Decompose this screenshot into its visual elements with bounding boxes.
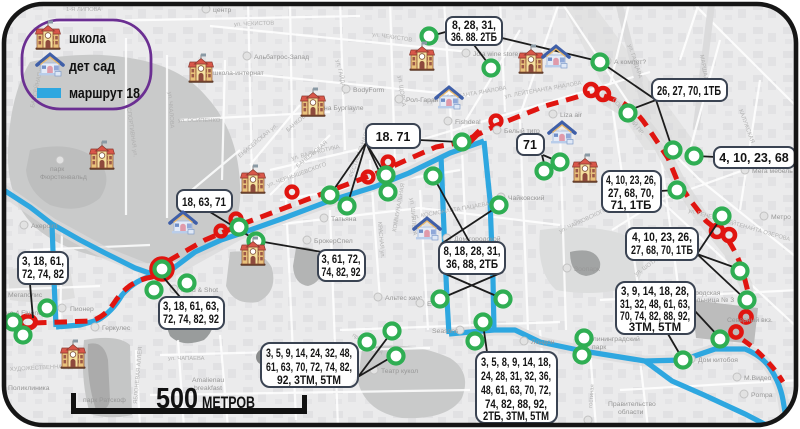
- svg-text:500: 500: [156, 383, 198, 415]
- svg-text:ул. ОСИПЕНКО: ул. ОСИПЕНКО: [178, 118, 221, 124]
- svg-text:Метро: Метро: [771, 214, 791, 221]
- svg-text:48, 61, 63, 70, 72,: 48, 61, 63, 70, 72,: [481, 385, 551, 397]
- svg-text:72, 74, 82: 72, 74, 82: [22, 269, 64, 281]
- svg-text:Правительство: Правительство: [608, 401, 656, 408]
- svg-text:31, 32, 48, 61, 63,: 31, 32, 48, 61, 63,: [620, 299, 690, 311]
- svg-text:М.Видео: М.Видео: [744, 375, 772, 382]
- svg-text:4, 10, 23, 26,: 4, 10, 23, 26,: [632, 232, 692, 244]
- svg-text:24, 28, 31, 32, 36,: 24, 28, 31, 32, 36,: [481, 371, 551, 383]
- svg-text:Мегаполис: Мегаполис: [8, 292, 43, 299]
- svg-text:Татьяна: Татьяна: [331, 216, 357, 223]
- svg-text:breakfast: breakfast: [194, 385, 222, 392]
- svg-text:дет сад: дет сад: [69, 58, 115, 75]
- svg-text:Фюрстенвальд: Фюрстенвальд: [40, 174, 87, 181]
- svg-text:3, 18, 61,: 3, 18, 61,: [22, 256, 64, 268]
- svg-text:27, 68, 70, 1ТБ: 27, 68, 70, 1ТБ: [631, 245, 693, 257]
- svg-text:ул. ЧАПАЕВА: ул. ЧАПАЕВА: [168, 356, 205, 362]
- svg-text:БрокерСпел: БрокерСпел: [314, 238, 353, 245]
- svg-text:2ТБ, 3ТМ, 5ТМ: 2ТБ, 3ТМ, 5ТМ: [483, 411, 549, 423]
- svg-text:Северный вкз.: Северный вкз.: [727, 316, 773, 324]
- svg-text:92, 3ТМ, 5ТМ: 92, 3ТМ, 5ТМ: [277, 375, 341, 387]
- svg-text:3, 18, 61, 63,: 3, 18, 61, 63,: [163, 301, 219, 313]
- svg-text:74, 82, 88, 92,: 74, 82, 88, 92,: [485, 399, 547, 411]
- svg-text:на Бургіауле: на Бургіауле: [324, 104, 364, 112]
- svg-text:маршрут 18: маршрут 18: [69, 85, 140, 102]
- svg-text:27, 68, 70,: 27, 68, 70,: [608, 188, 654, 200]
- svg-text:4, 10, 23, 26,: 4, 10, 23, 26,: [606, 175, 656, 187]
- svg-text:72, 74, 82, 92: 72, 74, 82, 92: [163, 314, 219, 326]
- svg-text:BodyForm: BodyForm: [353, 87, 385, 94]
- svg-text:Геркулес: Геркулес: [102, 325, 131, 332]
- svg-text:3, 5, 8, 9, 14, 18,: 3, 5, 8, 9, 14, 18,: [481, 357, 551, 369]
- svg-text:Лондон: Лондон: [531, 339, 555, 346]
- svg-text:парк: парк: [592, 344, 606, 351]
- svg-text:74, 82, 92: 74, 82, 92: [322, 267, 361, 279]
- svg-text:71: 71: [523, 138, 537, 152]
- svg-text:Альбатрос-Запад: Альбатрос-Запад: [254, 53, 309, 61]
- svg-text:парк: парк: [50, 166, 64, 173]
- svg-text:Пионер: Пионер: [70, 306, 94, 313]
- svg-text:61, 63, 70, 72, 74, 82,: 61, 63, 70, 72, 74, 82,: [266, 362, 352, 374]
- svg-text:1-Я ЛИПОВА: 1-Я ЛИПОВА: [66, 7, 101, 13]
- svg-text:Дом китобоя: Дом китобоя: [698, 356, 738, 364]
- svg-text:18, 63, 71: 18, 63, 71: [182, 197, 227, 209]
- svg-text:Театр кукол: Театр кукол: [381, 368, 418, 375]
- svg-text:Liza air: Liza air: [560, 112, 583, 119]
- svg-text:71, 1ТБ: 71, 1ТБ: [611, 200, 652, 212]
- svg-text:8, 28, 31,: 8, 28, 31,: [452, 20, 496, 32]
- svg-text:26, 27, 70, 1ТБ: 26, 27, 70, 1ТБ: [657, 84, 721, 98]
- svg-text:36. 88. 2ТБ: 36. 88. 2ТБ: [451, 32, 497, 44]
- svg-text:школа: школа: [69, 30, 107, 47]
- svg-text:Seasons: Seasons: [432, 328, 459, 335]
- svg-text:36, 88, 2ТБ: 36, 88, 2ТБ: [446, 259, 498, 271]
- svg-text:МЕТРОВ: МЕТРОВ: [202, 393, 255, 412]
- svg-text:Fishdeal: Fishdeal: [455, 119, 481, 126]
- svg-text:Axepoint: Axepoint: [31, 223, 58, 230]
- svg-text:3ТМ, 5ТМ: 3ТМ, 5ТМ: [629, 322, 681, 334]
- svg-text:А компот?: А компот?: [614, 59, 646, 66]
- svg-text:18. 71: 18. 71: [376, 130, 411, 144]
- svg-text:Поликлиника: Поликлиника: [8, 385, 50, 392]
- svg-text:Зоопарк: Зоопарк: [574, 266, 600, 273]
- svg-text:3, 61, 72,: 3, 61, 72,: [322, 254, 361, 266]
- svg-text:3, 5, 9, 14, 24, 32, 48,: 3, 5, 9, 14, 24, 32, 48,: [266, 348, 352, 360]
- svg-text:центр: центр: [213, 7, 231, 14]
- svg-text:Чайковский: Чайковский: [508, 194, 545, 202]
- svg-text:8, 18, 28, 31,: 8, 18, 28, 31,: [444, 246, 501, 258]
- svg-text:школа-интернат: школа-интернат: [213, 70, 264, 77]
- svg-text:парк Ратскоф: парк Ратскоф: [83, 397, 126, 404]
- svg-text:4, 10, 23, 68: 4, 10, 23, 68: [719, 151, 789, 165]
- svg-text:3, 9, 14, 18, 28,: 3, 9, 14, 18, 28,: [621, 286, 689, 298]
- svg-text:Pompa: Pompa: [751, 392, 773, 399]
- svg-text:области: области: [618, 408, 644, 416]
